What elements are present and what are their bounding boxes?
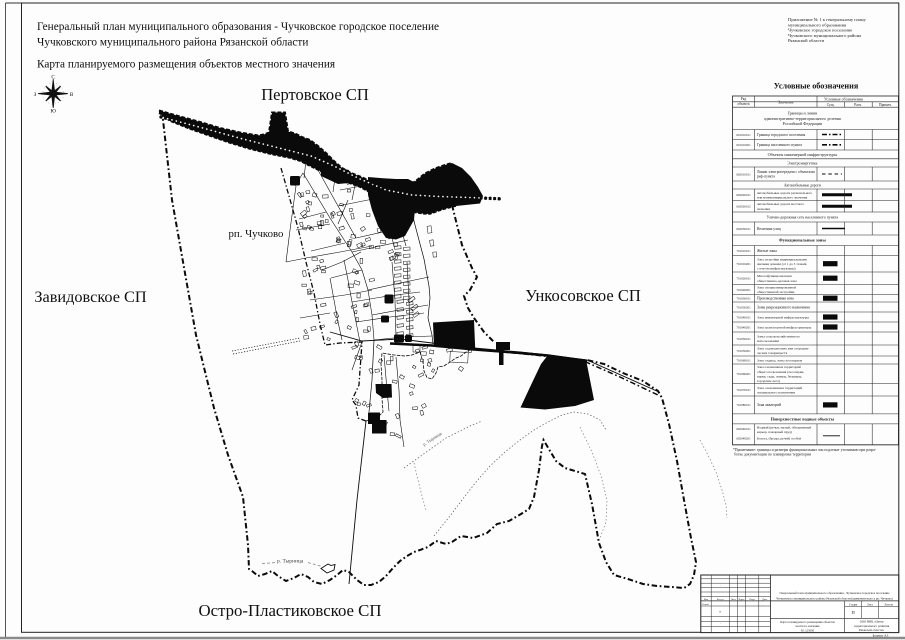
svg-text:Зона транспортной инфраструкту: Зона транспортной инфраструктуры: [757, 325, 812, 329]
svg-text:Автомобильные дороги: Автомобильные дороги: [784, 183, 821, 187]
svg-text:Подп.: Подп.: [749, 598, 755, 601]
svg-text:Многофункциональная: Многофункциональная: [757, 274, 792, 278]
svg-text:Поверхностные водные объекты: Поверхностные водные объекты: [771, 416, 835, 421]
svg-text:Объекты инженерной инфраструкт: Объекты инженерной инфраструктуры: [768, 152, 838, 157]
svg-text:В: В: [70, 92, 74, 98]
svg-text:Зоны рекреационного назначения: Зоны рекреационного назначения: [757, 305, 810, 309]
svg-text:Генеральный план муниципальног: Генеральный план муниципального образова…: [779, 591, 890, 595]
svg-text:общественно-деловая зона: общественно-деловая зона: [757, 279, 797, 283]
svg-text:Зона садоводческих или огородн: Зона садоводческих или огородни-: [757, 347, 810, 351]
svg-text:Зона специализированной: Зона специализированной: [757, 286, 796, 290]
svg-text:значения: значения: [757, 207, 770, 211]
svg-text:602010101: 602010101: [736, 172, 751, 176]
svg-text:701010201: 701010201: [736, 262, 751, 266]
svg-text:Карта планируемого размещения: Карта планируемого размещения объектов: [780, 620, 835, 624]
svg-text:Величина улиц: Величина улиц: [757, 227, 781, 231]
svg-text:Улично-дорожная сеть населенно: Улично-дорожная сеть населенного пункта: [767, 215, 839, 219]
svg-text:С: С: [51, 75, 55, 81]
svg-text:З: З: [34, 92, 37, 98]
svg-text:автомобильные дороги региональ: автомобильные дороги регионального: [757, 191, 813, 195]
svg-text:№док: №док: [739, 598, 746, 601]
svg-text:ботке документации по планиров: ботке документации по планировке террито…: [734, 453, 811, 457]
svg-text:Завидовское СП: Завидовское СП: [34, 287, 147, 306]
svg-text:объекта: объекта: [738, 102, 750, 106]
svg-text:М 1:25000: М 1:25000: [801, 628, 815, 632]
svg-text:Электроэнергетика: Электроэнергетика: [787, 161, 817, 165]
svg-text:Линии электропередачи с объект: Линии электропередачи с объектами: [757, 170, 815, 174]
svg-text:701010101: 701010101: [736, 249, 751, 253]
svg-text:Изм: Изм: [704, 598, 709, 601]
svg-text:701060101: 701060101: [736, 358, 751, 362]
svg-text:701050201: 701050201: [736, 349, 751, 353]
svg-text:Листов: Листов: [884, 604, 893, 607]
svg-text:Зоны сельскохозяйственного: Зоны сельскохозяйственного: [757, 335, 800, 339]
svg-text:Генеральный план муниципальног: Генеральный план муниципального образова…: [37, 21, 439, 33]
svg-text:Рязанской области»: Рязанской области»: [859, 628, 885, 632]
svg-text:602040201: 602040201: [736, 437, 751, 441]
svg-text:Примеч.: Примеч.: [879, 103, 892, 107]
svg-text:701050101: 701050101: [736, 337, 751, 341]
svg-text:602030101: 602030101: [736, 227, 751, 231]
svg-text:формат А3: формат А3: [873, 634, 889, 638]
svg-text:Чучковского муниципального рай: Чучковского муниципального района Рязанс…: [37, 37, 308, 49]
svg-text:701040201: 701040201: [736, 325, 751, 329]
svg-text:Граница городского поселения: Граница городского поселения: [757, 133, 806, 137]
svg-text:701030101: 701030101: [736, 297, 751, 301]
svg-text:Чучковское городское поселение: Чучковское городское поселение: [788, 28, 852, 33]
svg-text:Чучковского муниципального рай: Чучковского муниципального района: [788, 33, 861, 38]
svg-text:Границы и линии: Границы и линии: [788, 111, 819, 116]
svg-text:Условные обозначения: Условные обозначения: [774, 82, 859, 91]
svg-text:Расч.: Расч.: [854, 103, 862, 107]
svg-text:701020201: 701020201: [736, 288, 751, 292]
svg-text:Приложение № 1 к генеральному: Приложение № 1 к генеральному плану: [788, 17, 867, 22]
svg-text:с учетом инфраструктуры): с учетом инфраструктуры): [757, 267, 796, 271]
svg-text:602020101: 602020101: [736, 193, 751, 197]
svg-text:Ряд: Ряд: [741, 97, 747, 101]
svg-text:701070101: 701070101: [736, 388, 751, 392]
svg-text:602040101: 602040101: [736, 427, 751, 431]
svg-text:р. Тырница: р. Тырница: [277, 559, 304, 565]
svg-text:*Примечание: границы и размеры: *Примечание: границы и размеры функциона…: [733, 448, 877, 452]
svg-text:Российской Федерации: Российской Федерации: [783, 121, 823, 126]
svg-text:701040101: 701040101: [736, 315, 751, 319]
svg-text:701060201: 701060201: [736, 372, 751, 376]
svg-text:Условные обозначения: Условные обозначения: [824, 97, 863, 102]
svg-text:Производственная зона: Производственная зона: [757, 297, 794, 301]
svg-text:701030201: 701030201: [736, 305, 751, 309]
svg-text:Чучковского муниципального рай: Чучковского муниципального района Рязанс…: [776, 597, 892, 601]
svg-text:специального назначения: специального назначения: [757, 390, 795, 394]
svg-text:Карта планируемого размещения: Карта планируемого размещения объектов м…: [37, 59, 335, 71]
svg-text:или межмуниципального значения: или межмуниципального значения: [757, 195, 808, 199]
svg-text:Кол.уч: Кол.уч: [717, 598, 725, 601]
svg-text:Зона озелененных территорий: Зона озелененных территорий: [757, 386, 802, 390]
svg-text:701020101: 701020101: [736, 277, 751, 281]
svg-text:общественной застройки: общественной застройки: [757, 290, 795, 294]
svg-text:рп. Чучково: рп. Чучково: [229, 228, 284, 240]
svg-text:Стадия: Стадия: [849, 604, 858, 607]
svg-text:Зона озелененных территорий: Зона озелененных территорий: [757, 365, 801, 369]
svg-text:Ункосовское СП: Ункосовское СП: [525, 286, 641, 305]
svg-text:муниципального образования: муниципального образования: [788, 22, 847, 27]
svg-text:601010101: 601010101: [736, 133, 751, 137]
svg-text:Зона акваторий: Зона акваторий: [757, 403, 781, 407]
svg-text:701080101: 701080101: [736, 403, 751, 407]
svg-text:автомобильные дороги местного: автомобильные дороги местного: [757, 202, 805, 206]
svg-text:601010201: 601010201: [736, 143, 751, 147]
svg-text:использования: использования: [757, 339, 779, 343]
svg-text:Пертовское СП: Пертовское СП: [261, 85, 369, 104]
svg-text:реф-пункта: реф-пункта: [757, 175, 775, 179]
svg-text:Граница населенного пункта: Граница населенного пункта: [757, 143, 802, 147]
svg-text:Остро-Пластиковское СП: Остро-Пластиковское СП: [199, 601, 382, 620]
svg-text:ческих товариществ: ческих товариществ: [757, 351, 788, 355]
svg-text:Зона инженерной инфраструктуры: Зона инженерной инфраструктуры: [757, 315, 810, 319]
svg-text:602020102: 602020102: [736, 205, 751, 209]
svg-text:Рязанской области: Рязанской области: [788, 38, 825, 43]
svg-text:Жилые зоны: Жилые зоны: [757, 249, 777, 253]
svg-text:Разраб: Разраб: [702, 603, 709, 606]
svg-text:Лист: Лист: [867, 604, 874, 607]
svg-text:городские леса): городские леса): [757, 379, 780, 383]
svg-text:Сущ.: Сущ.: [827, 103, 835, 107]
svg-text:Функциональные зоны: Функциональные зоны: [779, 238, 826, 243]
svg-text:Ю: Ю: [50, 109, 56, 115]
svg-text:Зона застройки индивидуальными: Зона застройки индивидуальными: [757, 257, 807, 261]
